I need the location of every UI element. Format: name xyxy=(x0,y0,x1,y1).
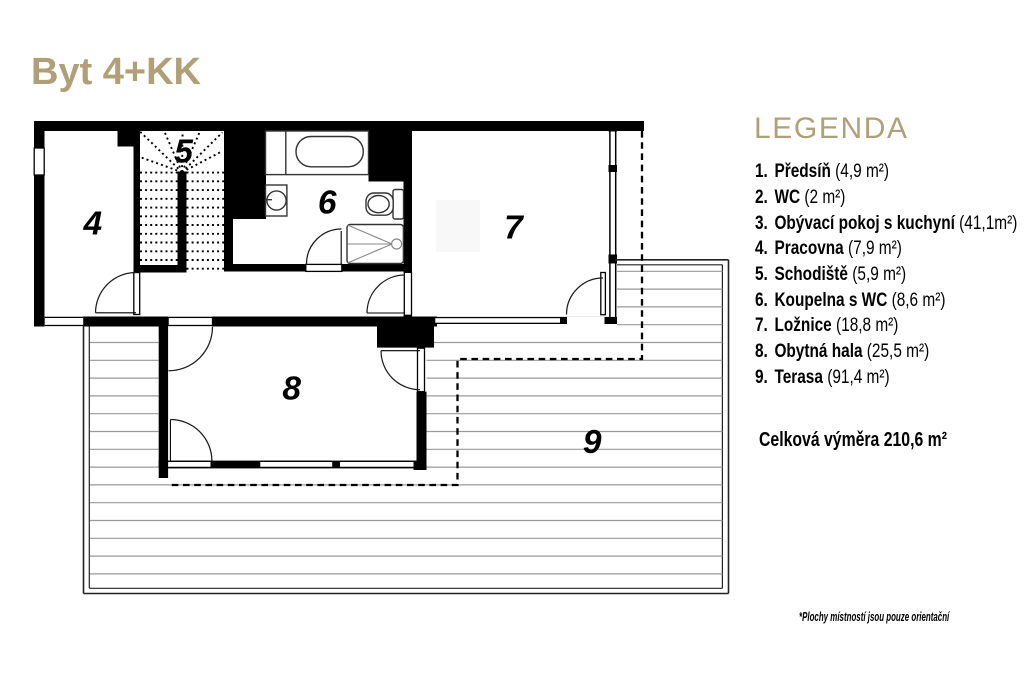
svg-text:6: 6 xyxy=(318,184,337,221)
svg-text:4: 4 xyxy=(82,205,102,242)
svg-text:5: 5 xyxy=(174,133,194,170)
svg-text:8: 8 xyxy=(282,370,301,407)
svg-text:7: 7 xyxy=(504,210,524,247)
svg-text:9: 9 xyxy=(583,424,602,461)
